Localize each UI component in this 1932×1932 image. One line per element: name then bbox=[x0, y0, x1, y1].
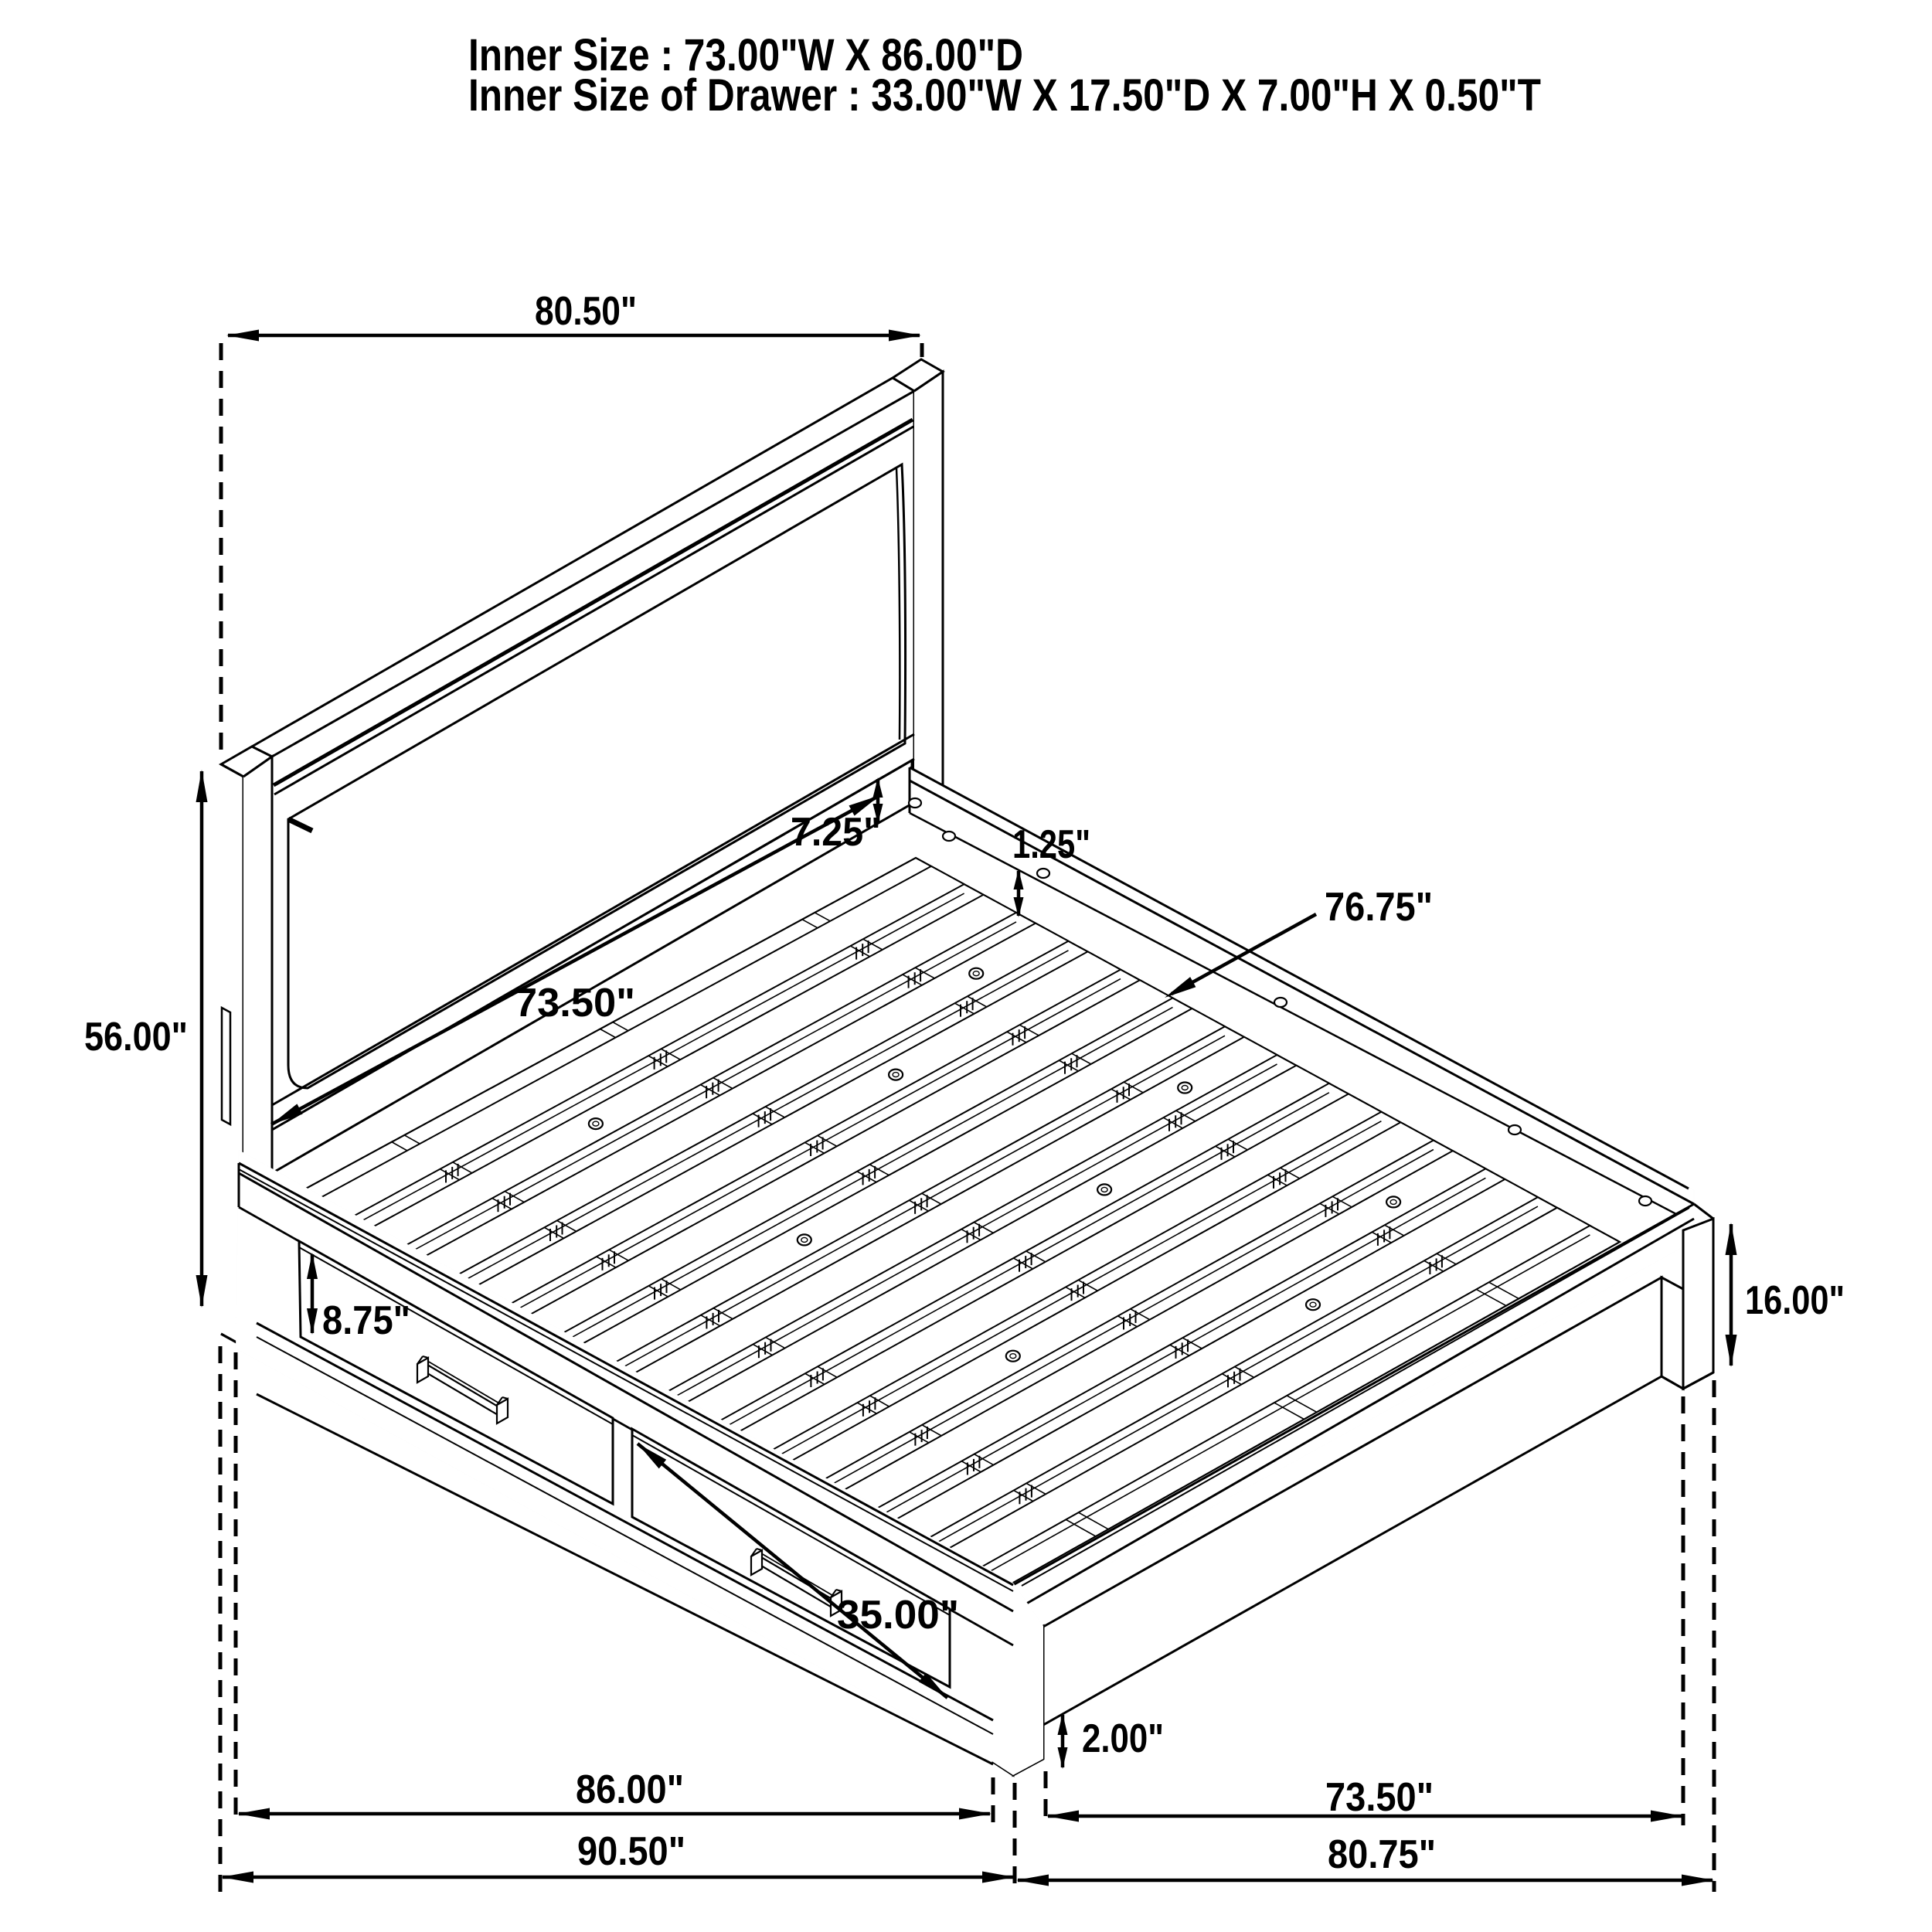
svg-text:Inner Size of Drawer : 33.00"W: Inner Size of Drawer : 33.00"W X 17.50"D… bbox=[468, 70, 1541, 121]
svg-text:56.00": 56.00" bbox=[84, 1015, 188, 1060]
svg-text:80.50": 80.50" bbox=[535, 289, 637, 334]
svg-text:35.00": 35.00" bbox=[837, 1593, 959, 1638]
svg-text:86.00": 86.00" bbox=[576, 1767, 684, 1812]
svg-text:16.00": 16.00" bbox=[1745, 1278, 1845, 1323]
svg-text:8.75": 8.75" bbox=[322, 1298, 410, 1343]
svg-text:1.25": 1.25" bbox=[1012, 822, 1090, 867]
svg-text:90.50": 90.50" bbox=[577, 1829, 685, 1874]
svg-text:7.25": 7.25" bbox=[791, 810, 881, 855]
svg-text:2.00": 2.00" bbox=[1082, 1716, 1164, 1761]
svg-text:76.75": 76.75" bbox=[1325, 885, 1433, 930]
svg-text:73.50": 73.50" bbox=[515, 981, 635, 1026]
svg-text:73.50": 73.50" bbox=[1325, 1775, 1434, 1820]
svg-text:80.75": 80.75" bbox=[1328, 1832, 1436, 1877]
